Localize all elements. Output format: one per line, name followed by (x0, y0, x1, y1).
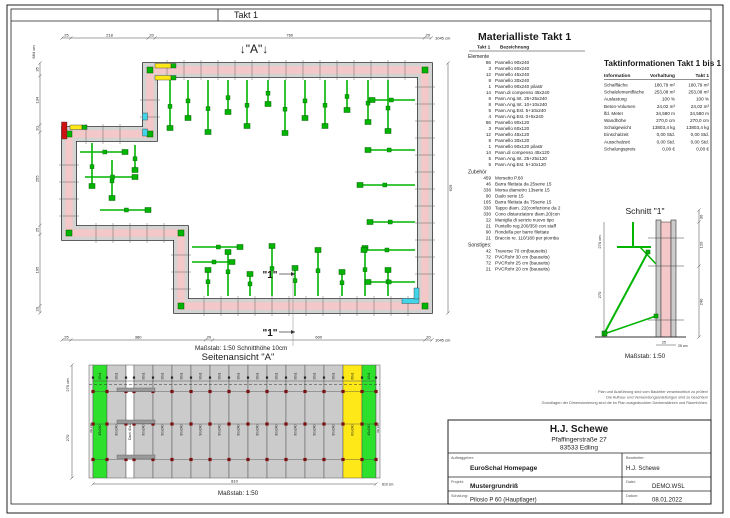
brace-head (132, 175, 138, 180)
dim-label: 600 (315, 334, 322, 339)
material-item-qty: 6 (488, 96, 491, 101)
tie-dot (341, 458, 344, 461)
drawing-sheet: Takt 1 2521820760201045 cm25380206002010… (0, 0, 730, 518)
material-item-qty: 14 (486, 90, 492, 95)
special-panel (82, 125, 87, 130)
brace-foot (248, 282, 252, 286)
brace-head (315, 248, 321, 253)
takt-info-takt1: 270,0 cm (690, 118, 709, 123)
panel-label: 90x240 (218, 424, 222, 435)
material-list-col-takt: Takt 1 (477, 45, 491, 50)
svg-text:Plan und Ausführung sind vom B: Plan und Ausführung sind vom Bauleiter v… (598, 390, 708, 394)
material-item-name: Maniglia di serizio nuovo tipo (495, 217, 554, 222)
schalung-label: Schalung: (451, 494, 468, 498)
elevation-panel (343, 365, 362, 478)
datum-value: 08.01.2022 (652, 498, 683, 504)
brace-foot (363, 268, 367, 272)
bearbeiter-label: Bearbeiter: (626, 456, 645, 460)
special-panel (414, 288, 419, 299)
dim-label: 20 (426, 334, 431, 339)
elevation-panel (267, 365, 286, 478)
tie-dot-top (266, 377, 268, 379)
tie-dot (91, 422, 94, 425)
tie-dot (341, 390, 344, 393)
material-item-name: PVCRohr 30 cm (bauseits) (495, 255, 550, 260)
special-panel (143, 113, 148, 120)
dim-total: 25 cm (678, 344, 688, 348)
dim-label: 255 (34, 175, 39, 182)
tie-dot (91, 390, 94, 393)
material-item-name: Pann.Ang.Int. 10+10x240 (495, 102, 547, 107)
takt-info-takt1: 100 % (696, 97, 709, 102)
tie-dot-top (125, 377, 127, 379)
formwork-strip (671, 220, 676, 337)
panel-label: 90x240 (313, 424, 317, 435)
special-panel (402, 299, 419, 304)
brace-head (109, 196, 115, 201)
brace-foot (303, 99, 307, 103)
panel-label: 45x240 (367, 424, 371, 435)
takt-info-header: Information (604, 73, 630, 79)
material-item-qty: 1 (488, 84, 491, 89)
panel-top-label: 90x1 (142, 372, 146, 379)
tie-dot (105, 390, 108, 393)
svg-text:Die Aufbau- und Verwendungsanl: Die Aufbau- und Verwendungsanleitungen s… (606, 396, 708, 400)
material-item-name: Barra filettata da 25serie 15 (495, 181, 552, 186)
elevation-panel (210, 365, 229, 478)
material-item-qty: 8 (488, 138, 491, 143)
brace-foot (245, 103, 249, 107)
auftraggeber-value: EuroSchal Homepage (470, 465, 538, 472)
panel-label: 90x240 (161, 424, 165, 435)
dim-label: 760 (286, 32, 293, 37)
dim-label: 35 (34, 66, 39, 71)
brace-foot (345, 95, 349, 99)
material-item-name: Barra filettata da 75serie 15 (495, 199, 552, 204)
takt-info-takt1: 180,79 m² (688, 83, 709, 88)
material-item-name: Pannello 90x120 pilastr (495, 144, 543, 149)
tie-dot (265, 458, 268, 461)
tie-dot-top (171, 377, 173, 379)
panel-label: 45x240 (98, 424, 102, 435)
material-item-name: Braccio re. 110/180 per piomba (495, 235, 559, 240)
elevation-panel (93, 365, 107, 478)
tie-dot (246, 390, 249, 393)
material-item-name: Pann.Ang.Est. 5+10x240 (495, 108, 546, 113)
brace-head (122, 150, 128, 155)
special-panel (62, 122, 68, 139)
takt-info-takt1: 0,00 Std. (691, 132, 709, 137)
panel-top-label: 90x1 (275, 372, 279, 379)
dim-label: 240 (699, 298, 704, 305)
material-item-name: Pannello 90x120 (495, 120, 530, 125)
traverse-bar (117, 388, 155, 392)
tie-dot (322, 422, 325, 425)
takt-info-vorhaltung: 34,580 m (656, 111, 675, 116)
brace-head (205, 268, 211, 273)
material-item-name: Pann.di compenso 45x120 (495, 150, 550, 155)
brace-head (225, 110, 231, 115)
company-city: 83533 Edling (560, 445, 598, 452)
brace-head (357, 183, 363, 188)
material-item-qty: 86 (486, 60, 492, 65)
dim-label: 25 (34, 227, 39, 232)
tie-dot-top (247, 377, 249, 379)
tie-dot (322, 390, 325, 393)
plan-drawing: 2521820760201045 cm2538020600201045 cm35… (31, 32, 453, 342)
material-item-name: Traverse 70 cm(bauseits) (495, 249, 547, 254)
corner-post (178, 303, 184, 309)
tie-dot (284, 422, 287, 425)
dim-total: 1045 cm (435, 36, 451, 41)
brace-head (365, 280, 371, 285)
panel-label: 60x240 (351, 424, 355, 435)
brace-foot (283, 107, 287, 111)
takt-info-title: Taktinformationen Takt 1 bis 1 (604, 59, 722, 68)
material-section-header: Zubehör (468, 169, 487, 175)
brace-foot (212, 260, 216, 264)
material-item-qty: 72 (486, 261, 492, 266)
elevation-panel (362, 365, 376, 478)
brace-foot (111, 175, 115, 179)
corner-post (178, 230, 184, 236)
traverse-bar (117, 455, 155, 459)
dim-label: 25 (64, 334, 69, 339)
material-item-qty: 12 (486, 72, 492, 77)
tie-dot (374, 390, 377, 393)
brace-head (365, 148, 371, 153)
company-street: Pfaffingerstraße 27 (551, 437, 607, 444)
tie-dot-top (375, 377, 377, 379)
dim-label: 195 (34, 266, 39, 273)
panel-top-label: 90x1 (256, 372, 260, 379)
dim-label: 20 (149, 32, 154, 37)
stabilizer-brace (604, 222, 656, 334)
material-item-name: Pannello 90x240 (495, 60, 530, 65)
panel-top-label: 60x1 (351, 372, 355, 379)
corner-post (66, 230, 72, 236)
tie-dot (208, 390, 211, 393)
material-item-name: Puntello reg.200/350 con staff (495, 223, 557, 228)
material-item-qty: 5 (488, 156, 491, 161)
brace-head (237, 245, 243, 250)
brace-head (365, 120, 371, 125)
material-item-name: Pann.Ang.Est. 5+10x120 (495, 162, 546, 167)
panel-label: 90x240 (199, 424, 203, 435)
brace-foot (383, 183, 387, 187)
brace-foot (90, 165, 94, 169)
brace-foot (387, 148, 391, 152)
section-1-drawing: 270 cm270301202402525 cm (595, 208, 704, 348)
brace-foot (266, 91, 270, 95)
brace-foot (385, 248, 389, 252)
material-item-qty: 5 (488, 162, 491, 167)
material-item-qty: 12 (486, 132, 492, 137)
brace-foot (226, 96, 230, 100)
brace-head (229, 260, 235, 265)
material-item-name: Cono distanziatore diam.20(con (495, 211, 560, 216)
disclaimer-text: Plan und Ausführung sind vom Bauleiter v… (542, 390, 708, 405)
panel-label: 90x240 (115, 424, 119, 435)
dim-label: 134 (34, 96, 39, 103)
tie-dot (170, 390, 173, 393)
tie-dot (227, 458, 230, 461)
tie-dot (265, 422, 268, 425)
panel-label: 90x240 (142, 424, 146, 435)
brace-head (282, 131, 288, 136)
takt-info-takt1: 13803,4 kg (686, 125, 709, 130)
takt-info-table: InformationVorhaltungTakt 1Schalfläche18… (604, 73, 709, 151)
side-view-drawing: AE 24045x145x24090x190x240Dach 40x24090x… (65, 363, 394, 486)
takt-info-takt1: 0,00 Std. (691, 139, 709, 144)
material-item-qty: 336 (483, 187, 491, 192)
material-item-name: Pannello 60x120 (495, 126, 530, 131)
takt-info-vorhaltung: 0,00 Std. (657, 139, 675, 144)
brace-foot (293, 279, 297, 283)
elevation-panel (229, 365, 248, 478)
panel-top-label: 45x1 (98, 372, 102, 379)
material-item-qty: 459 (483, 175, 491, 180)
panel-label: 90x240 (256, 424, 260, 435)
takt-info-vorhaltung: 270,0 cm (656, 118, 675, 123)
panel-top-label: 90x1 (294, 372, 298, 379)
tie-dot (246, 458, 249, 461)
title-block: H.J. Schewe Pfaffingerstraße 27 83533 Ed… (448, 420, 711, 504)
brace-foot (133, 157, 137, 161)
sheet-svg: Takt 1 2521820760201045 cm25380206002010… (0, 0, 730, 518)
material-item-qty: 42 (486, 249, 492, 254)
material-item-qty: 22 (486, 217, 492, 222)
tie-dot-top (152, 377, 154, 379)
elevation-panel (172, 365, 191, 478)
material-item-qty: 8 (488, 78, 491, 83)
schnitt-dimensions: 270 cm270301202402525 cm (597, 208, 704, 348)
dim-label: 20 (34, 306, 39, 311)
tie-dot (246, 422, 249, 425)
material-list: Elemente86Pannello 90x2403Pannello 60x24… (468, 54, 561, 272)
tie-dot (170, 422, 173, 425)
material-item-qty: 8 (488, 102, 491, 107)
brace-head (132, 168, 138, 173)
tie-dot (105, 422, 108, 425)
schnitt-title: Schnitt "1" (625, 206, 664, 216)
elevation-panel (191, 365, 210, 478)
material-item-name: Pann.Ang.Est. 0+5x240 (495, 114, 544, 119)
tie-dot (91, 458, 94, 461)
tie-dot (208, 422, 211, 425)
takt-info-label: Schalelementfläche (604, 90, 645, 95)
tie-dot-top (285, 377, 287, 379)
material-item-qty: 1 (488, 144, 491, 149)
brace-head (225, 250, 231, 255)
tie-dot (170, 458, 173, 461)
material-item-name: Pannello 60x240 (495, 66, 530, 71)
traverse-bar (117, 420, 155, 424)
brace-foot (216, 245, 220, 249)
side-view-scale: Maßstab: 1:50 (218, 490, 259, 497)
takt-info-label: lfd. Meter (604, 111, 624, 116)
material-item-name: Pann.Ang.Int. 25+25x120 (495, 156, 547, 161)
brace-head (89, 184, 95, 189)
tie-dot-top (190, 377, 192, 379)
panel-top-label: 90x1 (161, 372, 165, 379)
tie-dot (360, 390, 363, 393)
brace-head (247, 272, 253, 277)
datei-label: Datei: (626, 480, 636, 484)
brace-foot (316, 269, 320, 273)
dim-total: 270 cm (65, 378, 70, 392)
brace-head (385, 268, 391, 273)
plan-scale-note: Maßstab: 1:50 Schnitthöhe 10cm (195, 345, 287, 352)
brace-foot (340, 281, 344, 285)
panel-top-label: 90x1 (180, 372, 184, 379)
brace-head (167, 126, 173, 131)
dim-label: 218 (106, 32, 113, 37)
takt-info-takt1: 253,08 m² (688, 90, 709, 95)
brace-head (145, 208, 151, 213)
brace-head (185, 116, 191, 121)
material-item-qty: 3 (488, 126, 491, 131)
takt-info-label: Ausschalzeit (604, 139, 631, 144)
takt-info-vorhaltung: 13803,4 kg (652, 125, 675, 130)
material-item-name: Pannello 45x120 (495, 132, 530, 137)
material-item-qty: 21 (486, 267, 492, 272)
takt-info-takt1: 0,00 € (696, 146, 709, 151)
schalung-value: Pilosio P 60 (Hauptlager) (470, 498, 537, 504)
brace-foot (389, 98, 393, 102)
material-item-name: Tappo diam. 22(confezione da 2 (495, 205, 561, 210)
brace-foot (206, 107, 210, 111)
material-item-qty: 5 (488, 108, 491, 113)
projekt-label: Projekt: (451, 480, 464, 484)
corner-post (422, 303, 428, 309)
material-item-qty: 90 (486, 193, 492, 198)
takt-info-vorhaltung: 0,00 € (662, 146, 675, 151)
tie-dot-top (342, 377, 344, 379)
section-marker-lower: "1" (262, 328, 277, 339)
dim-label: 380 (135, 334, 142, 339)
brace-foot (323, 103, 327, 107)
svg-text:Grundlagen der Dimensionierung: Grundlagen der Dimensionierung sind die … (542, 401, 708, 405)
brace-head (302, 116, 308, 121)
tie-dot-top (323, 377, 325, 379)
corner-post (147, 131, 153, 137)
panel-label: 90x240 (294, 424, 298, 435)
datum-label: Datum: (626, 494, 638, 498)
tie-dot (227, 422, 230, 425)
takt-info-vorhaltung: 0,00 Std. (657, 132, 675, 137)
material-item-name: Morsetto P.60 (495, 175, 523, 180)
panel-top-label: 90x1 (237, 372, 241, 379)
brace-foot (168, 104, 172, 108)
brace-head (205, 130, 211, 135)
brace-head (339, 270, 345, 275)
takt-info-label: Schalungspreis (604, 146, 636, 151)
tie-dot (208, 458, 211, 461)
company-name: H.J. Schewe (550, 424, 609, 435)
material-item-name: Pannello 30x240 (495, 78, 530, 83)
formwork-strip (656, 220, 661, 337)
material-item-name: Pannello 45x240 (495, 72, 530, 77)
tie-dot (322, 458, 325, 461)
brace-head (361, 248, 367, 253)
special-panel (155, 76, 171, 81)
dim-total: 1045 cm (435, 338, 451, 343)
brace-head (344, 108, 350, 113)
material-list-title: Materialliste Takt 1 (478, 31, 571, 43)
dim-label: 810 (231, 478, 238, 483)
takt-info-header: Takt 1 (695, 73, 709, 79)
special-panel (155, 64, 171, 69)
special-panel (171, 76, 176, 81)
material-item-name: Pann.Ang.Int. 25+25x240 (495, 96, 547, 101)
takt-info-header: Vorhaltung (650, 73, 675, 79)
special-panel (70, 125, 82, 130)
takt-info-takt1: 34,580 m (690, 111, 709, 116)
brace-foot (124, 208, 128, 212)
schnitt-scale: Maßstab: 1:50 (625, 353, 666, 360)
takt-info-vorhaltung: 180,79 m² (654, 83, 675, 88)
panel-label: 90x240 (237, 424, 241, 435)
tie-dot-top (92, 377, 94, 379)
panel-label: 90x240 (180, 424, 184, 435)
material-item-name: Rondella per barre filettate (495, 229, 550, 234)
material-item-name: Pann.di compenso 45x240 (495, 90, 550, 95)
elevation-panel (286, 365, 305, 478)
tie-dot (227, 390, 230, 393)
elevation-panel (324, 365, 343, 478)
dim-label: 20 (207, 334, 212, 339)
tie-dot (284, 390, 287, 393)
dim-label: 25 (662, 341, 666, 345)
brace-head (265, 102, 271, 107)
material-section-header: Elemente (468, 54, 489, 60)
takt-info-label: Schalfläche (604, 83, 628, 88)
material-item-qty: 165 (483, 199, 491, 204)
brace-head (322, 124, 328, 129)
tie-dot (341, 422, 344, 425)
material-item-name: Dado serie 15 (495, 193, 524, 198)
tie-dot-top (106, 377, 108, 379)
material-item-name: Morsa diametro 13serie 15 (495, 187, 550, 192)
dim-label: 20 (34, 125, 39, 130)
panel-top-label: 45x1 (367, 372, 371, 379)
material-item-qty: 21 (486, 235, 492, 240)
tie-dot-top (209, 377, 211, 379)
brace-head (369, 98, 375, 103)
brace-head (385, 129, 391, 134)
tie-dot (360, 458, 363, 461)
brace-foot (186, 99, 190, 103)
tie-dot (284, 458, 287, 461)
elevation-panel (153, 365, 172, 478)
material-list-col-name: Bezeichnung (500, 45, 529, 50)
brace-foot (110, 179, 114, 183)
view-a-marker: ↓"A"↓ (240, 42, 269, 56)
material-item-qty: 86 (486, 120, 492, 125)
takt-info-label: Schalgewicht (604, 125, 632, 130)
dim-label: 20 (426, 32, 431, 37)
brace-head (269, 244, 275, 249)
dim-label: 25 (64, 32, 69, 37)
tie-dot (105, 458, 108, 461)
material-item-name: PVCRohr 25 cm (bauseits) (495, 261, 550, 266)
panel-top-label: 90x1 (199, 372, 203, 379)
dim-label: 270 (65, 434, 70, 441)
takt-info-vorhaltung: 253,08 m² (654, 90, 675, 95)
dim-total: 629 (448, 184, 453, 191)
elevation-panel (248, 365, 267, 478)
